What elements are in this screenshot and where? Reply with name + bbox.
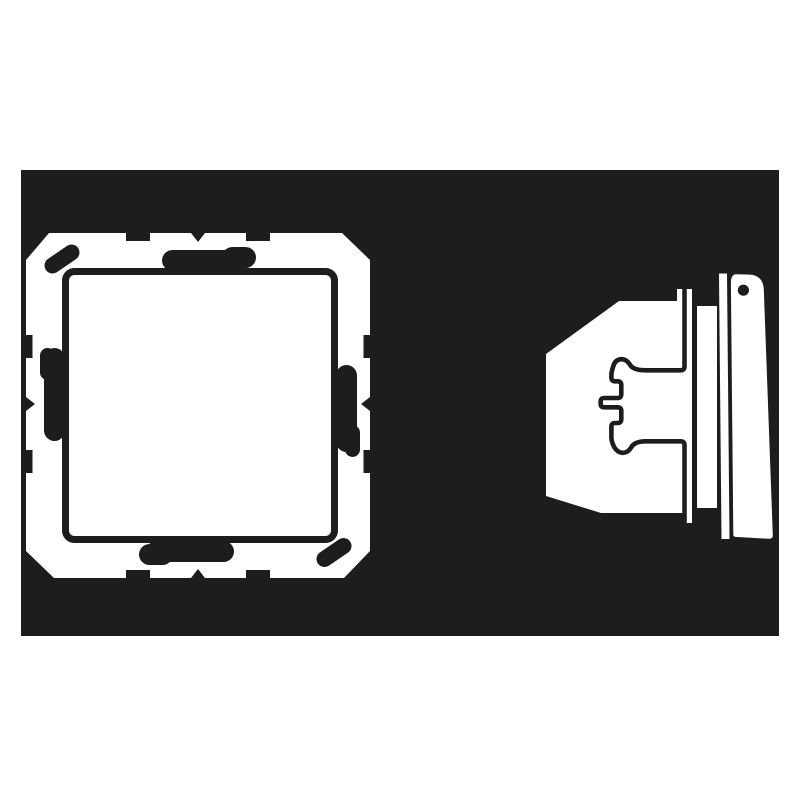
notch-top-left xyxy=(126,233,150,241)
cover-plate xyxy=(66,272,335,540)
slot-corner-top-left xyxy=(53,253,72,266)
slot-left-main xyxy=(44,348,65,441)
screw-hole xyxy=(738,285,749,296)
slot-corner-bottom-right xyxy=(325,546,344,559)
pictogram-canvas: Flush-mounted rocker switch pictogram - … xyxy=(0,0,800,800)
notch-bottom-right xyxy=(246,570,270,578)
notch-bottom-left xyxy=(126,570,150,578)
notch-right-upper xyxy=(364,335,371,358)
slot-right-lobe xyxy=(345,425,360,457)
notch-right-lower xyxy=(364,450,371,473)
notch-top-right xyxy=(246,233,270,241)
slot-bottom-lobe xyxy=(139,544,173,565)
frame-profile-bar xyxy=(697,306,717,508)
slot-top-lobe xyxy=(222,247,256,268)
notch-left-upper xyxy=(26,335,33,358)
switch-front-view xyxy=(26,233,370,578)
notch-left-lower xyxy=(26,450,33,473)
pictogram-page: Flush-mounted rocker switch pictogram - … xyxy=(0,0,800,800)
